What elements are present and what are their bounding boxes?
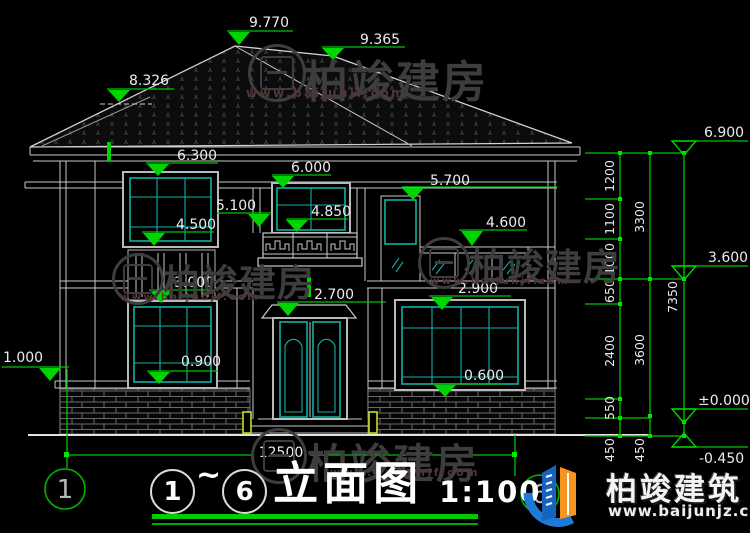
vdim-550: 550 — [602, 396, 617, 420]
balcony-unit — [258, 183, 362, 266]
level-ridge-main: 9.770 — [249, 15, 289, 31]
company-logo: 柏竣建筑 www.baijunjz.com — [516, 455, 750, 533]
level-win-sill-1f-right: 0.600 — [464, 368, 504, 384]
vdim-3600: 3600 — [632, 334, 647, 366]
level-base-band-left: 1.000 — [3, 350, 43, 366]
level-win-sill-2f-left: 4.500 — [176, 217, 216, 233]
elev-floor2: 3.600 — [708, 250, 748, 266]
level-win-head-2f-right: 4.600 — [486, 215, 526, 231]
title-axis-from: 1 — [150, 469, 195, 514]
elev-zero: ±0.000 — [698, 393, 750, 409]
elev-eave: 6.900 — [704, 125, 744, 141]
vdim-3300: 3300 — [632, 201, 647, 233]
vdim-2400: 2400 — [602, 335, 617, 367]
company-logo-icon — [516, 455, 602, 531]
title-tilde: ~ — [196, 461, 221, 491]
balcony-slab — [258, 258, 362, 266]
vdim-7350: 7350 — [665, 281, 680, 313]
vdim-1000: 1000 — [602, 243, 617, 275]
level-win-head-1f-left: 3.000 — [174, 275, 214, 291]
level-ridge-lower: 8.326 — [129, 73, 169, 89]
axis-number-start: 1 — [57, 475, 74, 505]
title-text: 立面图 — [273, 461, 423, 506]
right-1f-window — [395, 300, 525, 390]
dimension-chains-right: 1200 1100 1000 650 2400 550 450 3300 360… — [585, 151, 686, 462]
title-underline-thin — [152, 523, 478, 525]
level-pier-left: 5.100 — [216, 198, 256, 214]
narrow-window — [381, 196, 420, 281]
door-steps — [244, 419, 376, 433]
level-ridge-secondary: 9.365 — [360, 32, 400, 48]
level-balcony-sill: 4.850 — [311, 204, 351, 220]
level-win-head-1f-right: 2.900 — [458, 281, 498, 297]
eave-green-tick — [107, 142, 111, 161]
title-axis-to: 6 — [222, 469, 267, 514]
vdim-1100: 1100 — [602, 203, 617, 235]
glass-strip-2f-right — [420, 247, 555, 281]
level-door-head: 2.700 — [314, 287, 354, 303]
roof — [30, 46, 580, 161]
level-win-sill-1f-left: 0.900 — [181, 354, 221, 370]
drawing-title: 1 ~ 6 立面图 1:100 — [150, 461, 541, 514]
level-win-head-2f-center: 6.000 — [291, 160, 331, 176]
vdim-1200: 1200 — [602, 160, 617, 192]
elevation-drawing-canvas: 9.770 9.365 8.326 6.300 6.000 5.700 5.10… — [0, 0, 750, 533]
balcony-railing — [263, 233, 357, 258]
cad-drawing: 9.770 9.365 8.326 6.300 6.000 5.700 5.10… — [0, 0, 750, 533]
door-side-post-left — [243, 412, 251, 433]
door-canopy — [262, 305, 356, 318]
company-logo-url: www.baijunjz.com — [608, 502, 750, 520]
vdim-650: 650 — [602, 279, 617, 303]
level-eave: 6.300 — [177, 148, 217, 164]
title-underline-thick — [152, 514, 478, 519]
door-side-post-right — [369, 412, 377, 433]
entrance-door — [243, 305, 377, 433]
